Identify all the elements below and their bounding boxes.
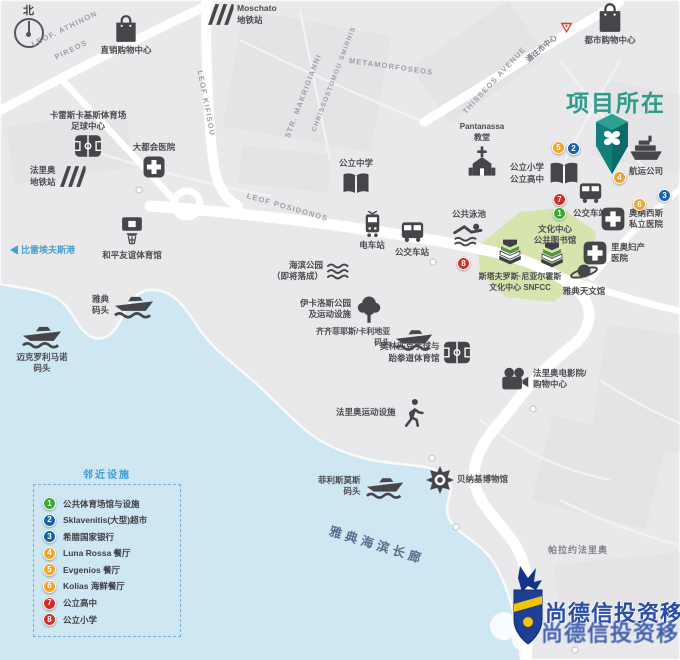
badge-number: 4 — [617, 174, 621, 182]
boat-icon — [20, 320, 64, 350]
poi-label: 码头 — [92, 305, 109, 316]
stadium-icon — [74, 134, 102, 158]
poi-label: 地铁站 — [30, 177, 56, 188]
poi-label: 公立小学 — [510, 162, 544, 173]
poi-label: 足球中心 — [50, 121, 127, 132]
basketball-hoop-icon — [117, 216, 147, 248]
runner-icon — [399, 398, 425, 428]
poi-palaio-faliro-label: 帕拉约法里奥 — [548, 543, 608, 556]
badge-number: 2 — [571, 145, 575, 153]
legend-item: 5Evgenios 餐厅 — [43, 563, 171, 576]
poi-label: 教堂 — [460, 133, 504, 144]
poi-flisvos-marina[interactable]: 菲利斯莫斯码头 — [318, 472, 406, 500]
sports-field-icon — [443, 340, 471, 365]
poi-label: 菲利斯莫斯 — [318, 475, 361, 486]
legend-label: Evgenios 餐厅 — [63, 564, 120, 576]
poi-label: 雅典 — [92, 294, 109, 305]
badge-number: 6 — [637, 201, 641, 209]
map-badge-3[interactable]: 3 — [658, 189, 671, 202]
map-badge-2[interactable]: 2 — [567, 142, 580, 155]
badge-number: 5 — [556, 144, 560, 152]
poi-metropolitan-hospital[interactable]: 大都会医院 — [112, 142, 196, 179]
poi-label: 及运动设施 — [300, 309, 351, 320]
waves-icon — [326, 262, 356, 280]
poi-label: 法里奥电影院/ — [533, 368, 586, 379]
map-badge-4[interactable]: 4 — [613, 171, 626, 184]
poi-label: 电车站 — [359, 240, 385, 251]
poi-faliro-metro[interactable]: 法里奥地铁站 — [30, 165, 86, 188]
poi-label: 公交车站 — [395, 247, 429, 258]
poi-label: 法里奥运动设施 — [336, 407, 396, 418]
star-museum-icon — [426, 466, 454, 494]
bus-icon — [399, 220, 426, 245]
legend-item: 3希腊国家银行 — [43, 530, 171, 543]
poi-onassis-hospital[interactable]: 奥纳西斯私立医院 — [600, 206, 663, 232]
poi-public-pool[interactable]: 公共泳池 — [438, 209, 500, 247]
boat-icon — [364, 472, 406, 500]
poi-label: 航运公司 — [629, 166, 663, 177]
legend-label: 公立小学 — [63, 614, 97, 626]
map-badge-1[interactable]: 1 — [553, 207, 566, 220]
poi-label: 比雷埃夫斯港 — [21, 243, 75, 256]
poi-outlet-mall[interactable]: 直销购物中心 — [90, 14, 162, 56]
poi-label: 法里奥 — [30, 165, 56, 176]
hospital-cross-icon — [142, 155, 166, 179]
map-badge-7[interactable]: 7 — [553, 193, 566, 206]
swimmer-icon — [452, 222, 486, 247]
legend-item: 1公共体育场馆与设施 — [43, 497, 171, 510]
poi-label: （即将落成） — [272, 271, 323, 282]
hospital-cross-icon — [600, 206, 626, 232]
poi-seaside-park[interactable]: 海滨公园（即将落成） — [272, 260, 356, 282]
poi-label: 雅典天文馆 — [563, 286, 606, 297]
poi-label: Moschato — [237, 3, 277, 14]
metro-icon — [59, 165, 86, 188]
compass-north-label: 北 — [23, 2, 34, 18]
legend-badge: 8 — [43, 613, 56, 626]
legend-label: 希腊国家银行 — [63, 531, 114, 543]
legend: 邻近设施 1公共体育场馆与设施 2Sklavenitis(大型)超市 3希腊国家… — [33, 466, 181, 637]
poi-label: 里奥妇产 — [611, 242, 645, 253]
legend-box: 1公共体育场馆与设施 2Sklavenitis(大型)超市 3希腊国家银行 4L… — [33, 484, 181, 637]
badge-number: 7 — [557, 196, 561, 204]
planet-icon — [569, 260, 599, 284]
poi-label: 直销购物中心 — [100, 45, 151, 56]
poi-planetarium[interactable]: 雅典天文馆 — [546, 260, 622, 297]
poi-faliro-sports[interactable]: 法里奥运动设施 — [336, 398, 425, 428]
poi-peace-friendship-stadium[interactable]: 和平友谊体育馆 — [86, 216, 178, 261]
legend-badge: 2 — [43, 514, 56, 527]
poi-label: 码头 — [318, 486, 361, 497]
small-bay — [425, 574, 480, 617]
poi-moschato-metro[interactable]: Moschato地铁站 — [207, 3, 277, 26]
poi-label: 伊卡洛斯公园 — [300, 298, 351, 309]
legend-item: 2Sklavenitis(大型)超市 — [43, 514, 171, 527]
tram-icon — [359, 211, 386, 238]
poi-athens-marina[interactable]: 雅典码头 — [92, 290, 156, 320]
poi-label: 贝纳基博物馆 — [457, 474, 508, 485]
poi-pantanassa-church[interactable]: Pantanassa教堂 — [446, 122, 518, 177]
legend-badge: 4 — [43, 547, 56, 560]
poi-label: 大都会医院 — [133, 142, 176, 153]
poi-label: 海滨公园 — [272, 260, 323, 271]
poi-label: 私立医院 — [629, 219, 663, 230]
legend-badge: 1 — [43, 497, 56, 510]
legend-item: 7公立高中 — [43, 597, 171, 610]
legend-badge: 5 — [43, 563, 56, 576]
map[interactable]: 北 LEOF. ATHINON PIREOS LEOF KIFISOU STR.… — [0, 0, 680, 660]
left-arrow-icon — [10, 245, 18, 255]
poi-label: 卡雷斯卡基斯体育场 — [50, 110, 127, 121]
legend-badge: 7 — [43, 597, 56, 610]
tree-icon — [354, 294, 384, 324]
shopping-bag-icon — [596, 2, 624, 33]
poi-label: 文化中心 — [534, 224, 577, 235]
poi-label: 地铁站 — [237, 15, 277, 26]
legend-badge: 6 — [43, 580, 56, 593]
poi-label: 奥纳西斯 — [629, 208, 663, 219]
poi-piraeus-port[interactable]: 比雷埃夫斯港 — [10, 243, 75, 256]
open-book-icon — [340, 171, 372, 196]
legend-item: 4Luna Rossa 餐厅 — [43, 547, 171, 560]
map-badge-8[interactable]: 8 — [457, 257, 470, 270]
metro-icon — [207, 3, 234, 26]
poi-label: 迈克罗利马诺 — [16, 352, 67, 363]
legend-label: Kolias 海鲜餐厅 — [63, 580, 125, 592]
map-badge-6[interactable]: 6 — [633, 198, 646, 211]
poi-label: 码头 — [16, 363, 67, 374]
legend-label: Sklavenitis(大型)超市 — [63, 514, 147, 526]
badge-number: 1 — [557, 210, 561, 218]
poi-label: 都市购物中心 — [584, 35, 635, 46]
poi-city-mall[interactable]: 都市购物中心 — [570, 2, 650, 46]
poi-faliro-cinema[interactable]: 法里奥电影院/购物中心 — [500, 366, 586, 392]
shopping-bag-icon — [113, 14, 139, 43]
poi-label: 公立高中 — [510, 174, 544, 185]
poi-label: Pantanassa — [460, 122, 504, 133]
legend-label: Luna Rossa 餐厅 — [63, 547, 131, 559]
badge-number: 8 — [461, 260, 465, 268]
poi-label: 和平友谊体育馆 — [102, 250, 162, 261]
poi-public-middle-school[interactable]: 公立中学 — [322, 158, 390, 196]
poi-ikaros-park[interactable]: 伊卡洛斯公园及运动设施 — [300, 294, 384, 324]
poi-label: 奥林匹克手球与 — [380, 341, 440, 352]
legend-badge: 3 — [43, 530, 56, 543]
ship-icon — [629, 134, 663, 164]
poi-label: 跆拳道体育馆 — [380, 353, 440, 364]
poi-label: 公共泳池 — [452, 209, 486, 220]
badge-number: 3 — [662, 192, 666, 200]
poi-benaki-museum[interactable]: 贝纳基博物馆 — [426, 466, 508, 494]
movie-camera-icon — [500, 366, 530, 392]
bus-icon — [577, 181, 604, 206]
poi-label: 购物中心 — [533, 379, 586, 390]
legend-item: 6Kolias 海鲜餐厅 — [43, 580, 171, 593]
poi-label: 齐齐菲耶斯/卡利地亚 — [316, 327, 390, 338]
compass-dot — [26, 32, 31, 37]
legend-item: 8公立小学 — [43, 613, 171, 626]
poi-label: 公立中学 — [339, 158, 373, 169]
legend-label: 公立高中 — [63, 597, 97, 609]
poi-mikrolimano[interactable]: 迈克罗利马诺码头 — [6, 320, 78, 374]
poi-bus-station-center[interactable]: 公交车站 — [384, 220, 440, 258]
legend-label: 公共体育场馆与设施 — [63, 498, 140, 510]
poi-handball-arena[interactable]: 奥林匹克手球与跆拳道体育馆 — [380, 340, 471, 365]
boat-icon — [112, 290, 156, 320]
watermark-text-ghost: 尚德信投资移民 — [541, 616, 680, 648]
map-badge-5[interactable]: 5 — [552, 141, 565, 154]
library-books-icon — [496, 238, 524, 266]
church-icon — [466, 145, 498, 177]
poi-shipping-company[interactable]: 航运公司 — [620, 134, 672, 177]
legend-title: 邻近设施 — [33, 466, 181, 481]
